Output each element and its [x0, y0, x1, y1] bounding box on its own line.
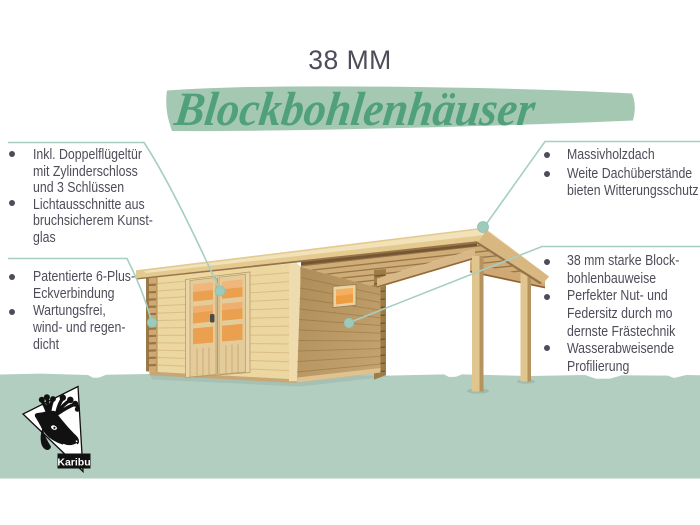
svg-text:Karibu: Karibu — [57, 457, 90, 469]
